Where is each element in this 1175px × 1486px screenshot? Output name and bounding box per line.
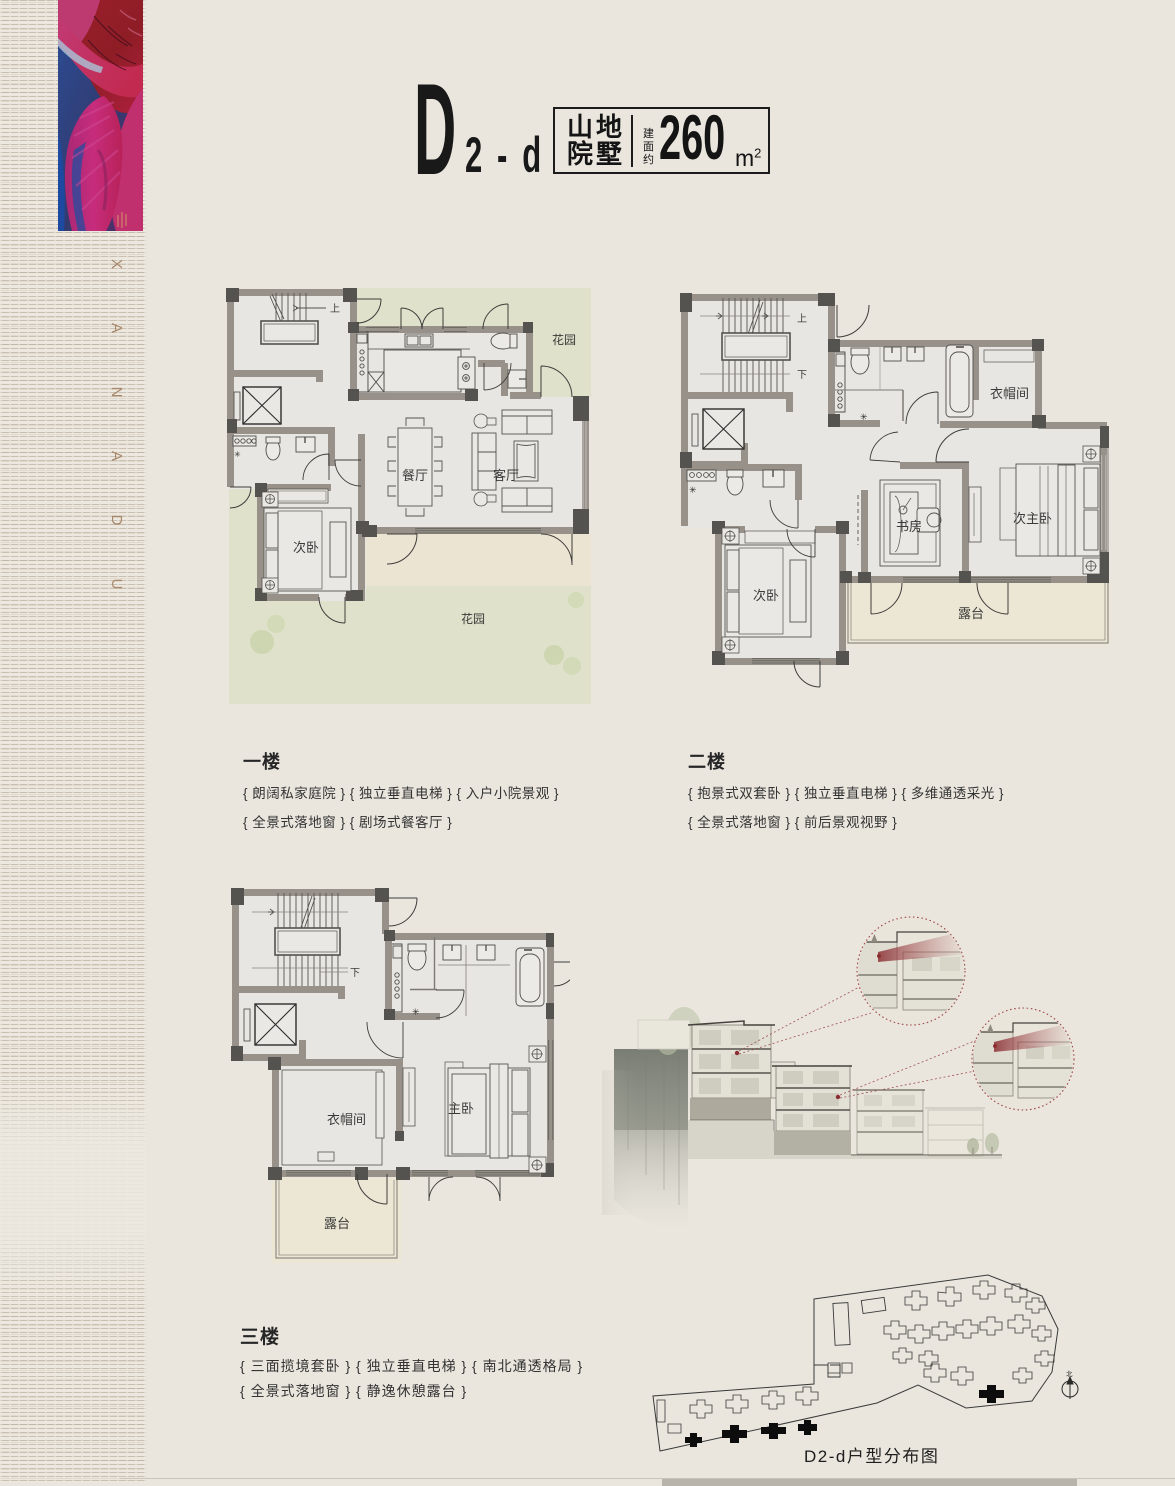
svg-text:✳: ✳ [234, 450, 241, 459]
svg-text:北: 北 [1066, 1370, 1073, 1378]
svg-text:衣帽间: 衣帽间 [990, 386, 1029, 401]
svg-text:衣帽间: 衣帽间 [327, 1112, 366, 1127]
svg-text:餐厅: 餐厅 [402, 468, 428, 483]
svg-text:✳: ✳ [689, 485, 697, 495]
svg-text:✳: ✳ [860, 412, 868, 422]
svg-text:客厅: 客厅 [493, 468, 519, 483]
svg-text:花园: 花园 [552, 332, 576, 347]
svg-text:D2-d户型分布图: D2-d户型分布图 [804, 1447, 939, 1466]
svg-text:下: 下 [797, 370, 807, 381]
svg-text:次卧: 次卧 [293, 540, 319, 555]
svg-text:次主卧: 次主卧 [1013, 511, 1052, 526]
svg-text:✳: ✳ [412, 1007, 420, 1017]
svg-text:次卧: 次卧 [753, 588, 779, 603]
svg-text:书房: 书房 [896, 519, 922, 534]
svg-text:主卧: 主卧 [448, 1101, 474, 1116]
svg-text:露台: 露台 [324, 1216, 350, 1231]
svg-text:露台: 露台 [958, 606, 984, 621]
svg-text:上: 上 [330, 303, 340, 315]
svg-text:上: 上 [797, 313, 807, 325]
svg-text:下: 下 [350, 968, 360, 979]
svg-text:花园: 花园 [461, 611, 485, 626]
